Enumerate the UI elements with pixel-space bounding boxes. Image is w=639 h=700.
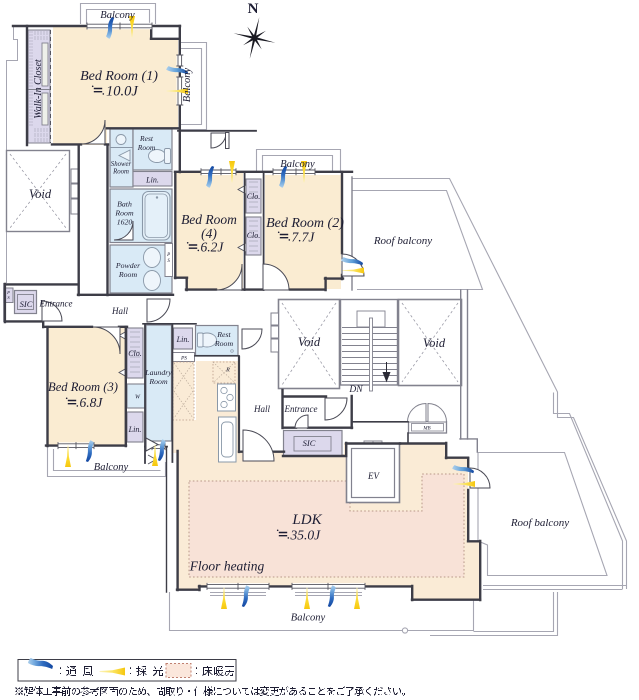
svg-text:Entrance: Entrance	[39, 299, 73, 309]
svg-text:Balcony: Balcony	[94, 462, 129, 473]
svg-text:Hall: Hall	[253, 404, 271, 414]
svg-text:R: R	[225, 368, 230, 374]
svg-text:Floor heating: Floor heating	[189, 559, 265, 574]
svg-text:P: P	[166, 253, 170, 258]
svg-text:7.7J: 7.7J	[292, 230, 316, 245]
svg-text:6.2J: 6.2J	[201, 240, 225, 255]
svg-text:Roof balcony: Roof balcony	[373, 235, 432, 247]
svg-text:Entrance: Entrance	[284, 404, 318, 414]
svg-text:Balcony: Balcony	[182, 67, 193, 102]
svg-text:SIC: SIC	[20, 299, 33, 309]
svg-text:LDK: LDK	[291, 512, 322, 528]
svg-text:Clo.: Clo.	[247, 192, 261, 201]
svg-text:Void: Void	[298, 335, 321, 349]
svg-text:Void: Void	[423, 336, 446, 350]
svg-text:Roof balcony: Roof balcony	[510, 517, 569, 529]
svg-text:1620: 1620	[117, 218, 133, 227]
svg-text:Hall: Hall	[111, 306, 129, 316]
svg-text:Clo.: Clo.	[247, 231, 261, 240]
svg-text:Room: Room	[112, 169, 129, 176]
svg-text:Void: Void	[29, 187, 52, 201]
svg-text:Powder: Powder	[115, 261, 141, 270]
svg-text:Lin.: Lin.	[128, 425, 142, 434]
svg-text:Rest: Rest	[139, 134, 154, 143]
svg-text:EV: EV	[367, 471, 380, 481]
svg-text:Room: Room	[148, 377, 168, 386]
svg-text:Lin.: Lin.	[176, 335, 190, 344]
svg-text:Bed Room: Bed Room	[181, 212, 237, 227]
svg-text:PS: PS	[180, 356, 187, 362]
svg-text:Room: Room	[214, 339, 234, 348]
svg-text:Rest: Rest	[216, 330, 231, 339]
svg-text:Balcony: Balcony	[280, 159, 315, 170]
svg-text:Bath: Bath	[117, 200, 132, 209]
svg-text:Room: Room	[137, 143, 156, 152]
svg-text:10.0J: 10.0J	[106, 84, 138, 100]
svg-text:Bed Room (3): Bed Room (3)	[48, 380, 118, 394]
svg-text:MB: MB	[422, 427, 430, 432]
svg-text:Clo.: Clo.	[128, 349, 142, 358]
svg-text:DN: DN	[348, 385, 363, 395]
svg-text:35.0J: 35.0J	[290, 528, 322, 543]
svg-text:Laundry: Laundry	[144, 368, 172, 377]
svg-text:Balcony: Balcony	[291, 613, 326, 624]
svg-text:6.8J: 6.8J	[80, 395, 104, 410]
svg-text:SIC: SIC	[303, 438, 316, 448]
svg-text:Room: Room	[118, 270, 138, 279]
svg-text:Room: Room	[114, 209, 134, 218]
svg-text:Walk-In Closet: Walk-In Closet	[33, 59, 44, 119]
svg-text:Balcony: Balcony	[100, 10, 135, 21]
svg-text:Lin.: Lin.	[145, 176, 159, 185]
svg-text:Bed Room (1): Bed Room (1)	[80, 69, 158, 84]
svg-text:N: N	[248, 1, 259, 17]
svg-text:Shower: Shower	[111, 161, 132, 168]
